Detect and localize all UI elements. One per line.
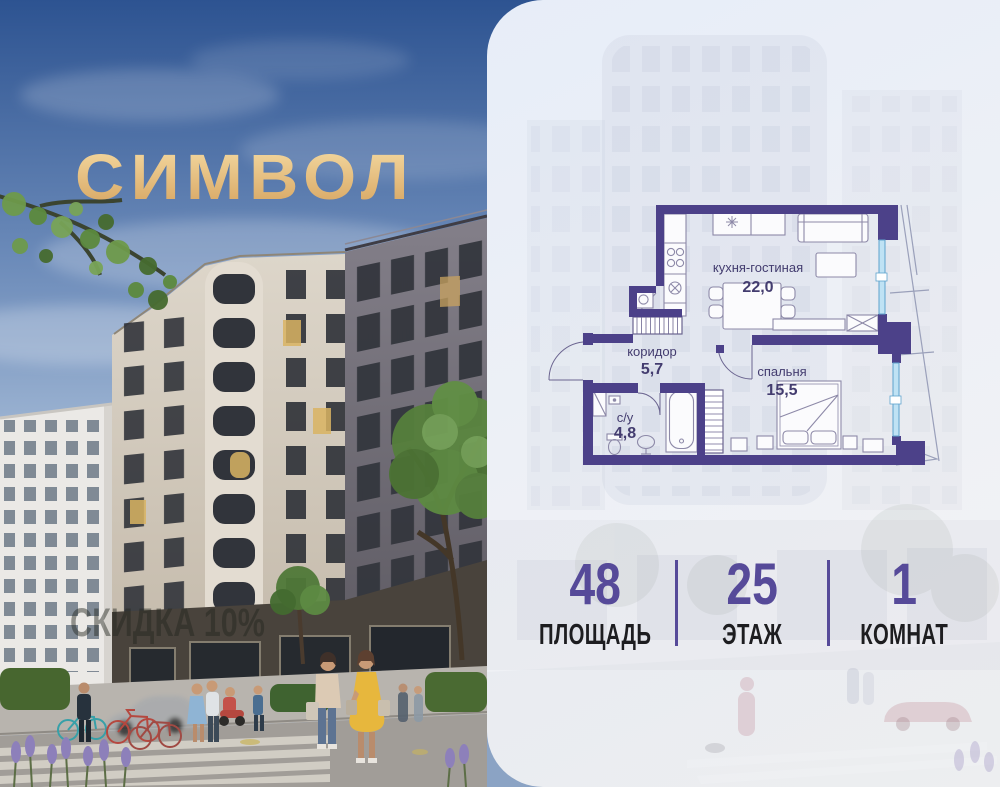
kitchen-label: кухня-гостиная [713, 260, 803, 275]
kitchen-area: 22,0 [742, 279, 773, 296]
tv-bench [773, 319, 845, 330]
floor-plan: кухня-гостиная 22,0 коридор 5,7 спальня … [545, 193, 955, 483]
hall-wardrobe [633, 317, 682, 334]
bathroom-label: с/у [617, 410, 634, 425]
rooms-label: КОМНАТ [852, 619, 956, 652]
apartment-panel: кухня-гостиная 22,0 коридор 5,7 спальня … [487, 0, 1000, 787]
stat-rooms: 1 КОМНАТ [830, 556, 978, 652]
bathroom-area: 4,8 [614, 425, 636, 442]
lit-window [440, 276, 460, 307]
white-building [0, 404, 112, 712]
wardrobe-x [847, 315, 878, 331]
beige-windows-left [118, 309, 202, 618]
corridor-area: 5,7 [641, 361, 663, 378]
sofa [798, 214, 868, 242]
stat-floor: 25 ЭТАЖ [678, 556, 826, 652]
floor-label: ЭТАЖ [701, 619, 805, 652]
stats-row: 48 ПЛОЩАДЬ 25 ЭТАЖ 1 КОМНАТ [515, 556, 978, 652]
bedroom-area: 15,5 [766, 382, 797, 399]
corridor-label: коридор [627, 344, 677, 359]
washbasin [638, 436, 655, 455]
rooms-value: 1 [845, 556, 964, 614]
stat-area: 48 ПЛОЩАДЬ [515, 556, 675, 652]
area-value: 48 [531, 556, 659, 614]
area-label: ПЛОЩАДЬ [539, 619, 651, 652]
floor-value: 25 [693, 556, 812, 614]
watermark-text: СКИДКА 10% [70, 601, 265, 645]
brand-logo: СИМВОЛ [75, 141, 415, 213]
bathtub [666, 388, 697, 452]
bedroom-label: спальня [757, 364, 806, 379]
listing-card: СКИДКА 10% [0, 0, 1000, 787]
coffee-table [816, 253, 856, 277]
